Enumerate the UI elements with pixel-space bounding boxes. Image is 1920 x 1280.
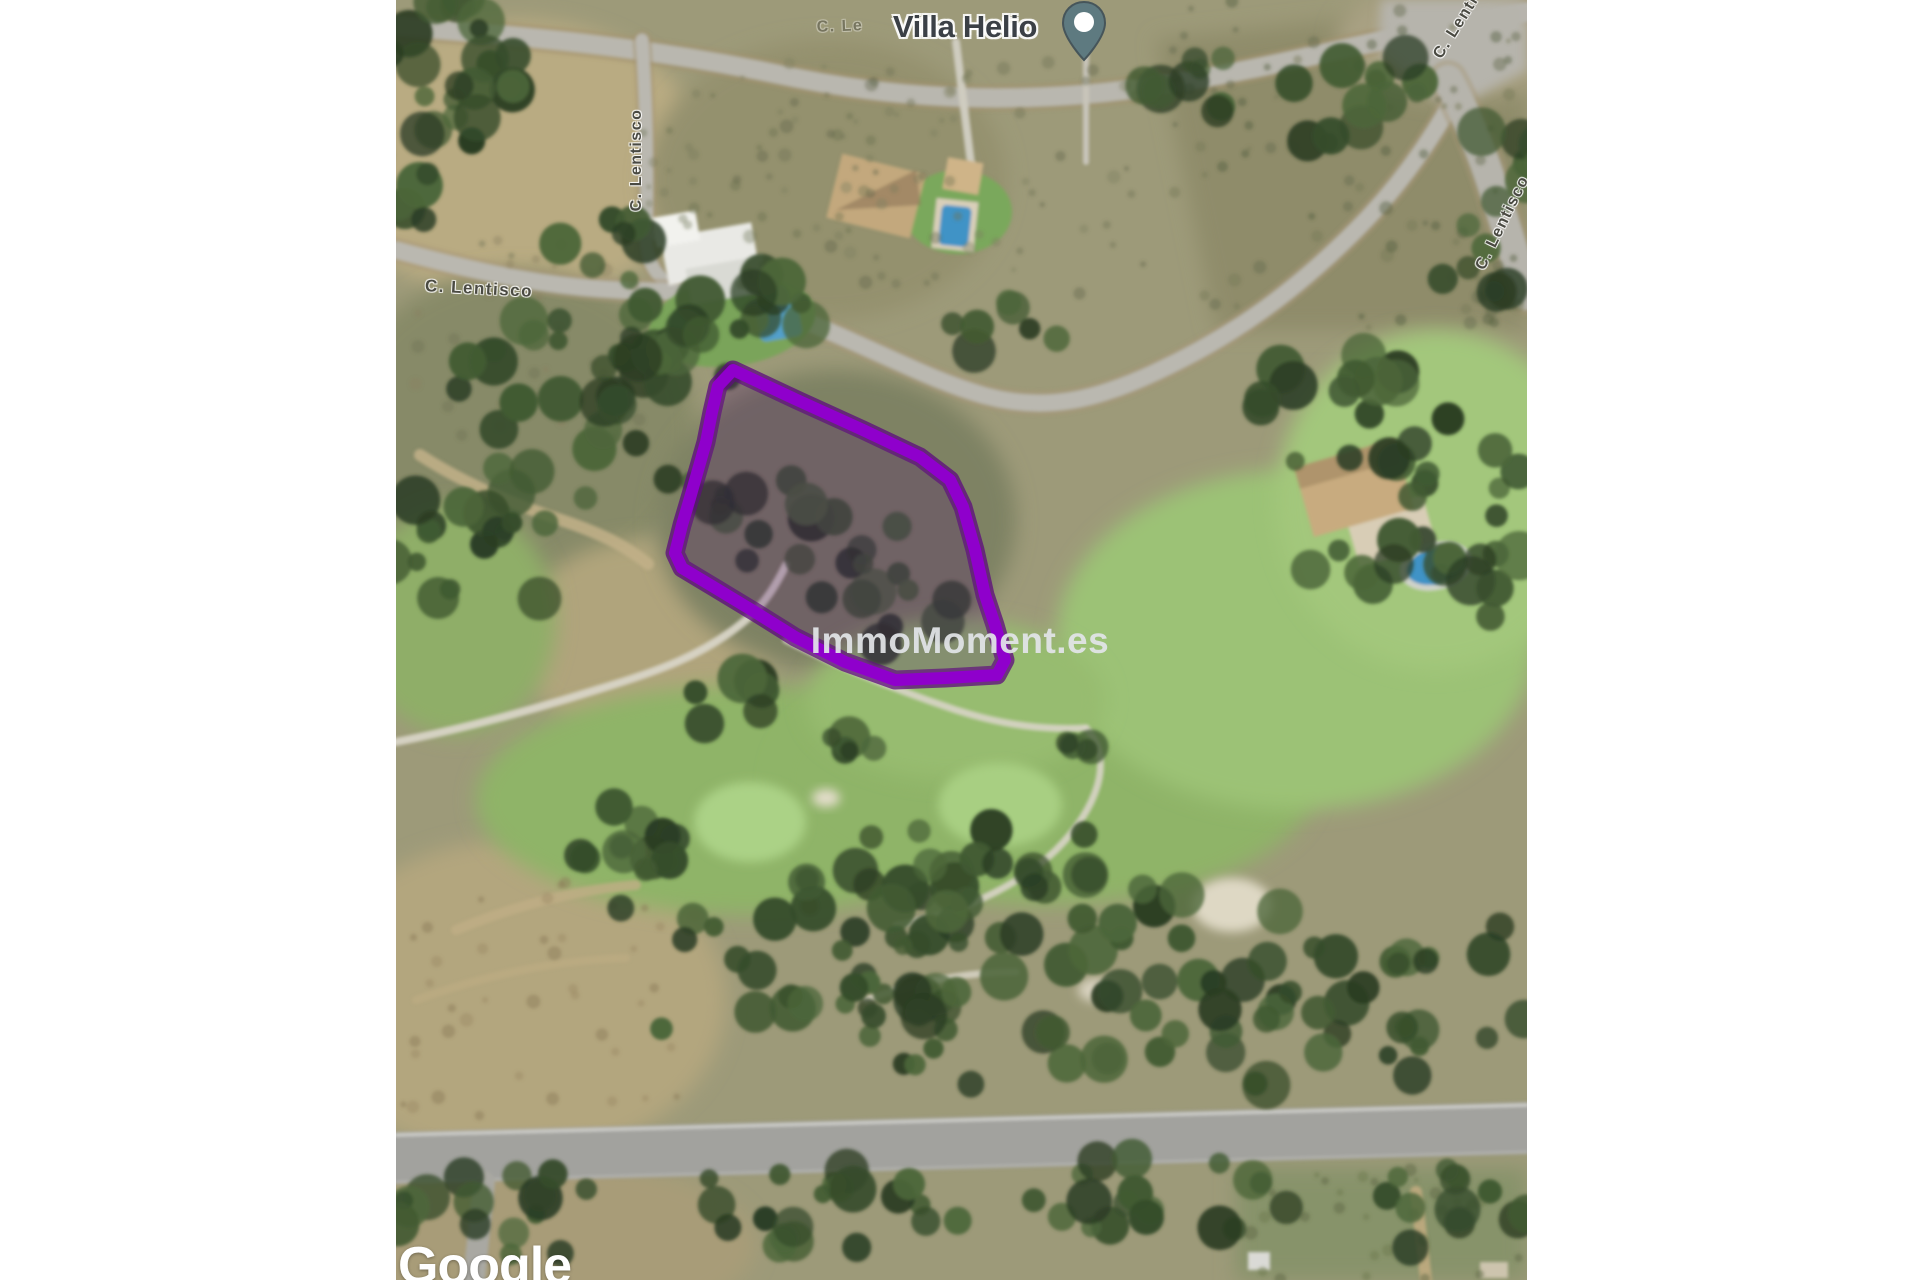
page-background: Villa Helio C. Lentisco C. Lentisco C. L…: [0, 0, 1920, 1280]
watermark: ImmoMoment.es: [811, 620, 1109, 662]
google-attribution: Google: [398, 1236, 571, 1280]
street-label-lentisco-vertical: C. Lentisco: [628, 109, 646, 212]
satellite-image[interactable]: Villa Helio C. Lentisco C. Lentisco C. L…: [396, 0, 1527, 1280]
street-label-partial-faint: C. Le: [816, 17, 863, 37]
place-label: Villa Helio: [893, 9, 1037, 45]
place-pin-icon: [1060, 0, 1108, 62]
